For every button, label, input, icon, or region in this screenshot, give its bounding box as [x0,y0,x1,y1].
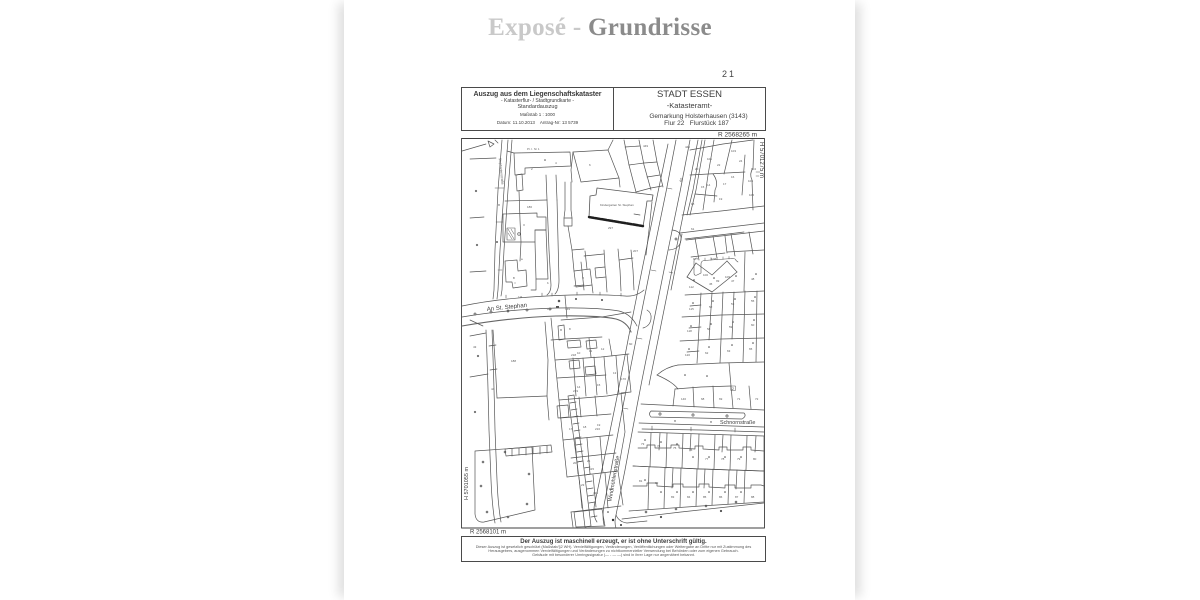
svg-text:55: 55 [751,299,755,303]
svg-text:14: 14 [577,385,581,389]
svg-text:15: 15 [701,185,705,189]
svg-text:446: 446 [685,145,690,149]
svg-text:21: 21 [587,459,591,463]
svg-text:16: 16 [731,175,735,179]
svg-text:108: 108 [711,257,716,261]
svg-text:19: 19 [719,197,723,201]
svg-text:79: 79 [737,457,741,461]
svg-text:R 2568101 m: R 2568101 m [470,530,506,536]
svg-text:59: 59 [729,325,733,329]
svg-text:103: 103 [731,149,736,153]
svg-text:53: 53 [731,302,735,306]
svg-text:18: 18 [583,425,587,429]
svg-text:a: a [521,257,523,261]
svg-text:23: 23 [581,483,585,487]
svg-text:12: 12 [601,347,605,351]
svg-text:65: 65 [749,347,753,351]
svg-text:71: 71 [737,397,741,401]
svg-text:219: 219 [573,389,578,393]
svg-text:48: 48 [751,277,755,281]
svg-text:Kindergarten St. Stephan: Kindergarten St. Stephan [600,203,634,207]
svg-text:186: 186 [527,205,532,209]
svg-text:20: 20 [695,167,699,171]
svg-text:120: 120 [685,353,690,357]
svg-text:43: 43 [473,345,477,349]
svg-text:H 5701275 m: H 5701275 m [758,142,764,178]
svg-text:17: 17 [723,182,727,186]
svg-text:76: 76 [689,448,693,452]
svg-text:85: 85 [703,495,707,499]
svg-text:6: 6 [589,163,591,167]
svg-text:84: 84 [687,495,691,499]
svg-text:17: 17 [569,427,573,431]
svg-text:100: 100 [703,273,708,277]
svg-text:15: 15 [597,383,601,387]
svg-text:188: 188 [511,359,516,363]
svg-text:146: 146 [681,397,686,401]
svg-text:8: 8 [569,327,571,331]
svg-text:415: 415 [589,467,594,471]
svg-text:449: 449 [643,144,648,148]
svg-text:81: 81 [639,479,643,483]
svg-text:106: 106 [748,179,753,183]
svg-text:44: 44 [491,387,495,391]
svg-text:72: 72 [755,397,759,401]
svg-text:216: 216 [595,427,600,431]
svg-text:8: 8 [513,276,515,280]
svg-text:101: 101 [707,157,712,161]
svg-text:75: 75 [673,446,677,450]
svg-text:10: 10 [577,351,581,355]
svg-text:63: 63 [727,349,731,353]
svg-text:H 5701055 m: H 5701055 m [464,467,470,500]
svg-text:20: 20 [573,461,577,465]
svg-text:62: 62 [705,351,709,355]
svg-text:45: 45 [709,282,713,286]
svg-text:118: 118 [687,329,692,333]
svg-text:60: 60 [751,323,755,327]
svg-text:77: 77 [705,457,709,461]
svg-text:449: 449 [565,307,570,311]
svg-text:11: 11 [589,349,592,353]
svg-text:60: 60 [679,178,684,183]
svg-text:426: 426 [593,491,598,495]
svg-text:218: 218 [571,353,576,357]
svg-text:88: 88 [751,495,755,499]
svg-text:52: 52 [709,305,713,309]
svg-text:78: 78 [721,457,725,461]
svg-text:107: 107 [693,257,698,261]
svg-text:R 2568265 m: R 2568265 m [718,132,757,139]
svg-text:73: 73 [641,442,645,446]
svg-text:74: 74 [657,444,661,448]
svg-text:61: 61 [691,227,695,231]
svg-text:60: 60 [629,342,633,346]
svg-text:86: 86 [719,495,723,499]
svg-text:83: 83 [671,495,675,499]
svg-text:112: 112 [689,285,694,289]
svg-text:207: 207 [633,249,638,253]
svg-text:4: 4 [555,161,557,165]
svg-text:Schnornstraße: Schnornstraße [720,420,755,426]
svg-text:87: 87 [735,495,739,499]
svg-text:47: 47 [731,279,735,283]
svg-text:297: 297 [608,226,613,230]
svg-text:2: 2 [732,387,734,391]
svg-text:19: 19 [597,423,601,427]
svg-text:13a: 13a [547,307,552,311]
svg-text:105: 105 [749,193,754,197]
svg-text:115: 115 [689,307,694,311]
svg-text:104: 104 [751,167,756,171]
svg-text:69: 69 [719,397,723,401]
svg-text:22: 22 [717,163,721,167]
svg-text:99: 99 [716,279,720,283]
svg-text:170: 170 [621,377,626,381]
svg-text:68: 68 [701,397,705,401]
svg-text:109: 109 [725,275,730,279]
svg-text:58: 58 [707,327,711,331]
svg-text:13: 13 [613,371,617,375]
svg-text:Pl. I. Nr 1: Pl. I. Nr 1 [527,147,540,151]
svg-text:144: 144 [518,295,523,299]
svg-text:80: 80 [753,457,757,461]
svg-text:24: 24 [739,159,743,163]
svg-text:b: b [547,281,549,285]
svg-text:18: 18 [691,202,695,206]
svg-text:22: 22 [609,487,613,491]
svg-text:82: 82 [655,481,659,485]
svg-text:14: 14 [707,183,711,187]
